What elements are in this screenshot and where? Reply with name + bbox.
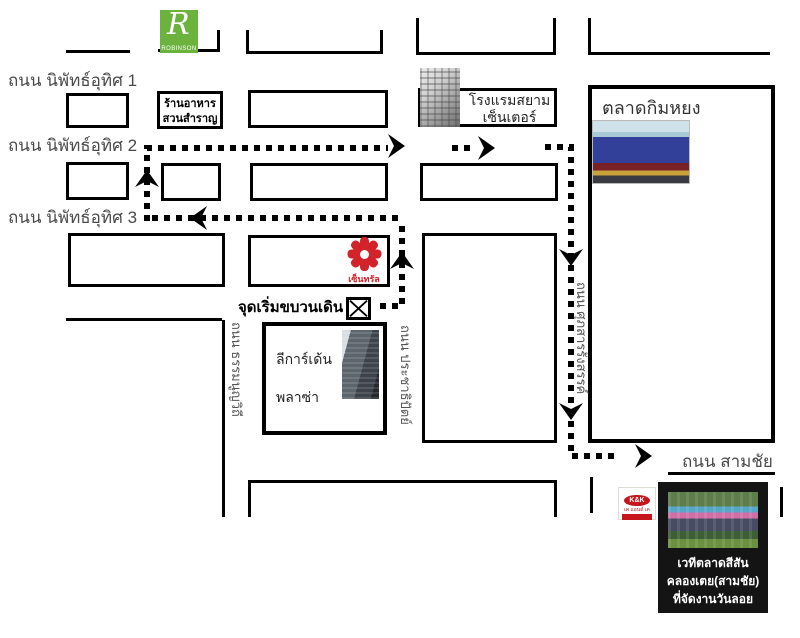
city-block (420, 163, 558, 201)
robinson-logo: R ROBINSON (160, 10, 198, 53)
central-label: เซ็นทรัล (338, 272, 390, 286)
street-label-prachathipat: ถนน ประชาธิปัตย์ (395, 325, 416, 425)
city-block (422, 233, 557, 443)
city-block (246, 30, 383, 54)
route-arrow-right (478, 136, 495, 160)
parade-start-marker-icon (346, 297, 371, 320)
boxed-x-icon (349, 300, 368, 317)
street-line (222, 320, 225, 517)
robinson-name: ROBINSON (160, 46, 198, 52)
route-arrow-down (559, 403, 583, 420)
street-label-niphat3: ถนน นิพัทธ์อุทิศ 3 (8, 204, 137, 231)
kimyong-market-photo (592, 120, 690, 184)
street-label-thamnoonvithi: ถนน ธรรมนูญวิถี (226, 322, 247, 417)
street-label-samchai: ถนน สามชัย (682, 448, 773, 475)
route-arrow-up (390, 252, 414, 269)
city-block (588, 18, 770, 55)
parade-start-label: จุดเริ่มขบวนเดิน (238, 295, 343, 319)
city-block (66, 162, 129, 200)
kimyong-market-label: ตลาดกิมหยง (602, 93, 700, 122)
street-label-niphat2: ถนน นิพัทธ์อุทิศ 2 (8, 132, 137, 159)
street-line (780, 487, 783, 517)
street-line (590, 477, 593, 513)
route-arrow-down (559, 249, 583, 266)
kk-band (622, 514, 652, 520)
hotel-label: โรงแรมสยาม เซ็นเตอร์ (467, 92, 552, 126)
restaurant-box: ร้านอาหาร สวนสำราญ (157, 91, 223, 129)
city-block (416, 18, 556, 55)
central-flower-icon (347, 237, 381, 271)
route-arrow-right (388, 134, 405, 158)
city-block (68, 233, 225, 287)
city-block (250, 163, 388, 201)
city-block (161, 163, 221, 201)
street-line (66, 318, 222, 321)
stage-label: เวทีตลาดสีสัน คลองเตย(สามชัย) ที่จัดงานว… (658, 554, 768, 626)
street-label-niphat1: ถนน นิพัทธ์อุทิศ 1 (8, 67, 137, 94)
kk-thai-label: เค แอนด์ เค (619, 507, 655, 513)
lee-gardens-photo (342, 330, 379, 399)
stage-photo (668, 492, 758, 548)
route-arrow-right (635, 444, 652, 468)
central-logo: เซ็นทรัล (338, 237, 390, 287)
route-arrow-up (135, 170, 159, 187)
city-block (248, 90, 388, 128)
robinson-r-icon: R (167, 7, 190, 42)
lee-gardens-label: ลีการ์เด้น พลาซ่า (276, 340, 332, 416)
route-arrow-left (190, 206, 207, 230)
street-line (66, 50, 130, 53)
city-block (66, 93, 129, 128)
street-label-suphasan: ถนน ศุภสารรังสรรค์ (571, 282, 592, 394)
kk-oval-label: K&K (624, 495, 649, 506)
siam-center-hotel-photo (420, 68, 460, 127)
parade-route-map: ร้านอาหาร สวนสำราญ โรงแรมสยาม เซ็นเตอร์ … (0, 0, 800, 638)
kk-logo: K&K เค แอนด์ เค (618, 487, 656, 520)
restaurant-label: ร้านอาหาร สวนสำราญ (160, 97, 220, 127)
city-block (248, 480, 557, 517)
